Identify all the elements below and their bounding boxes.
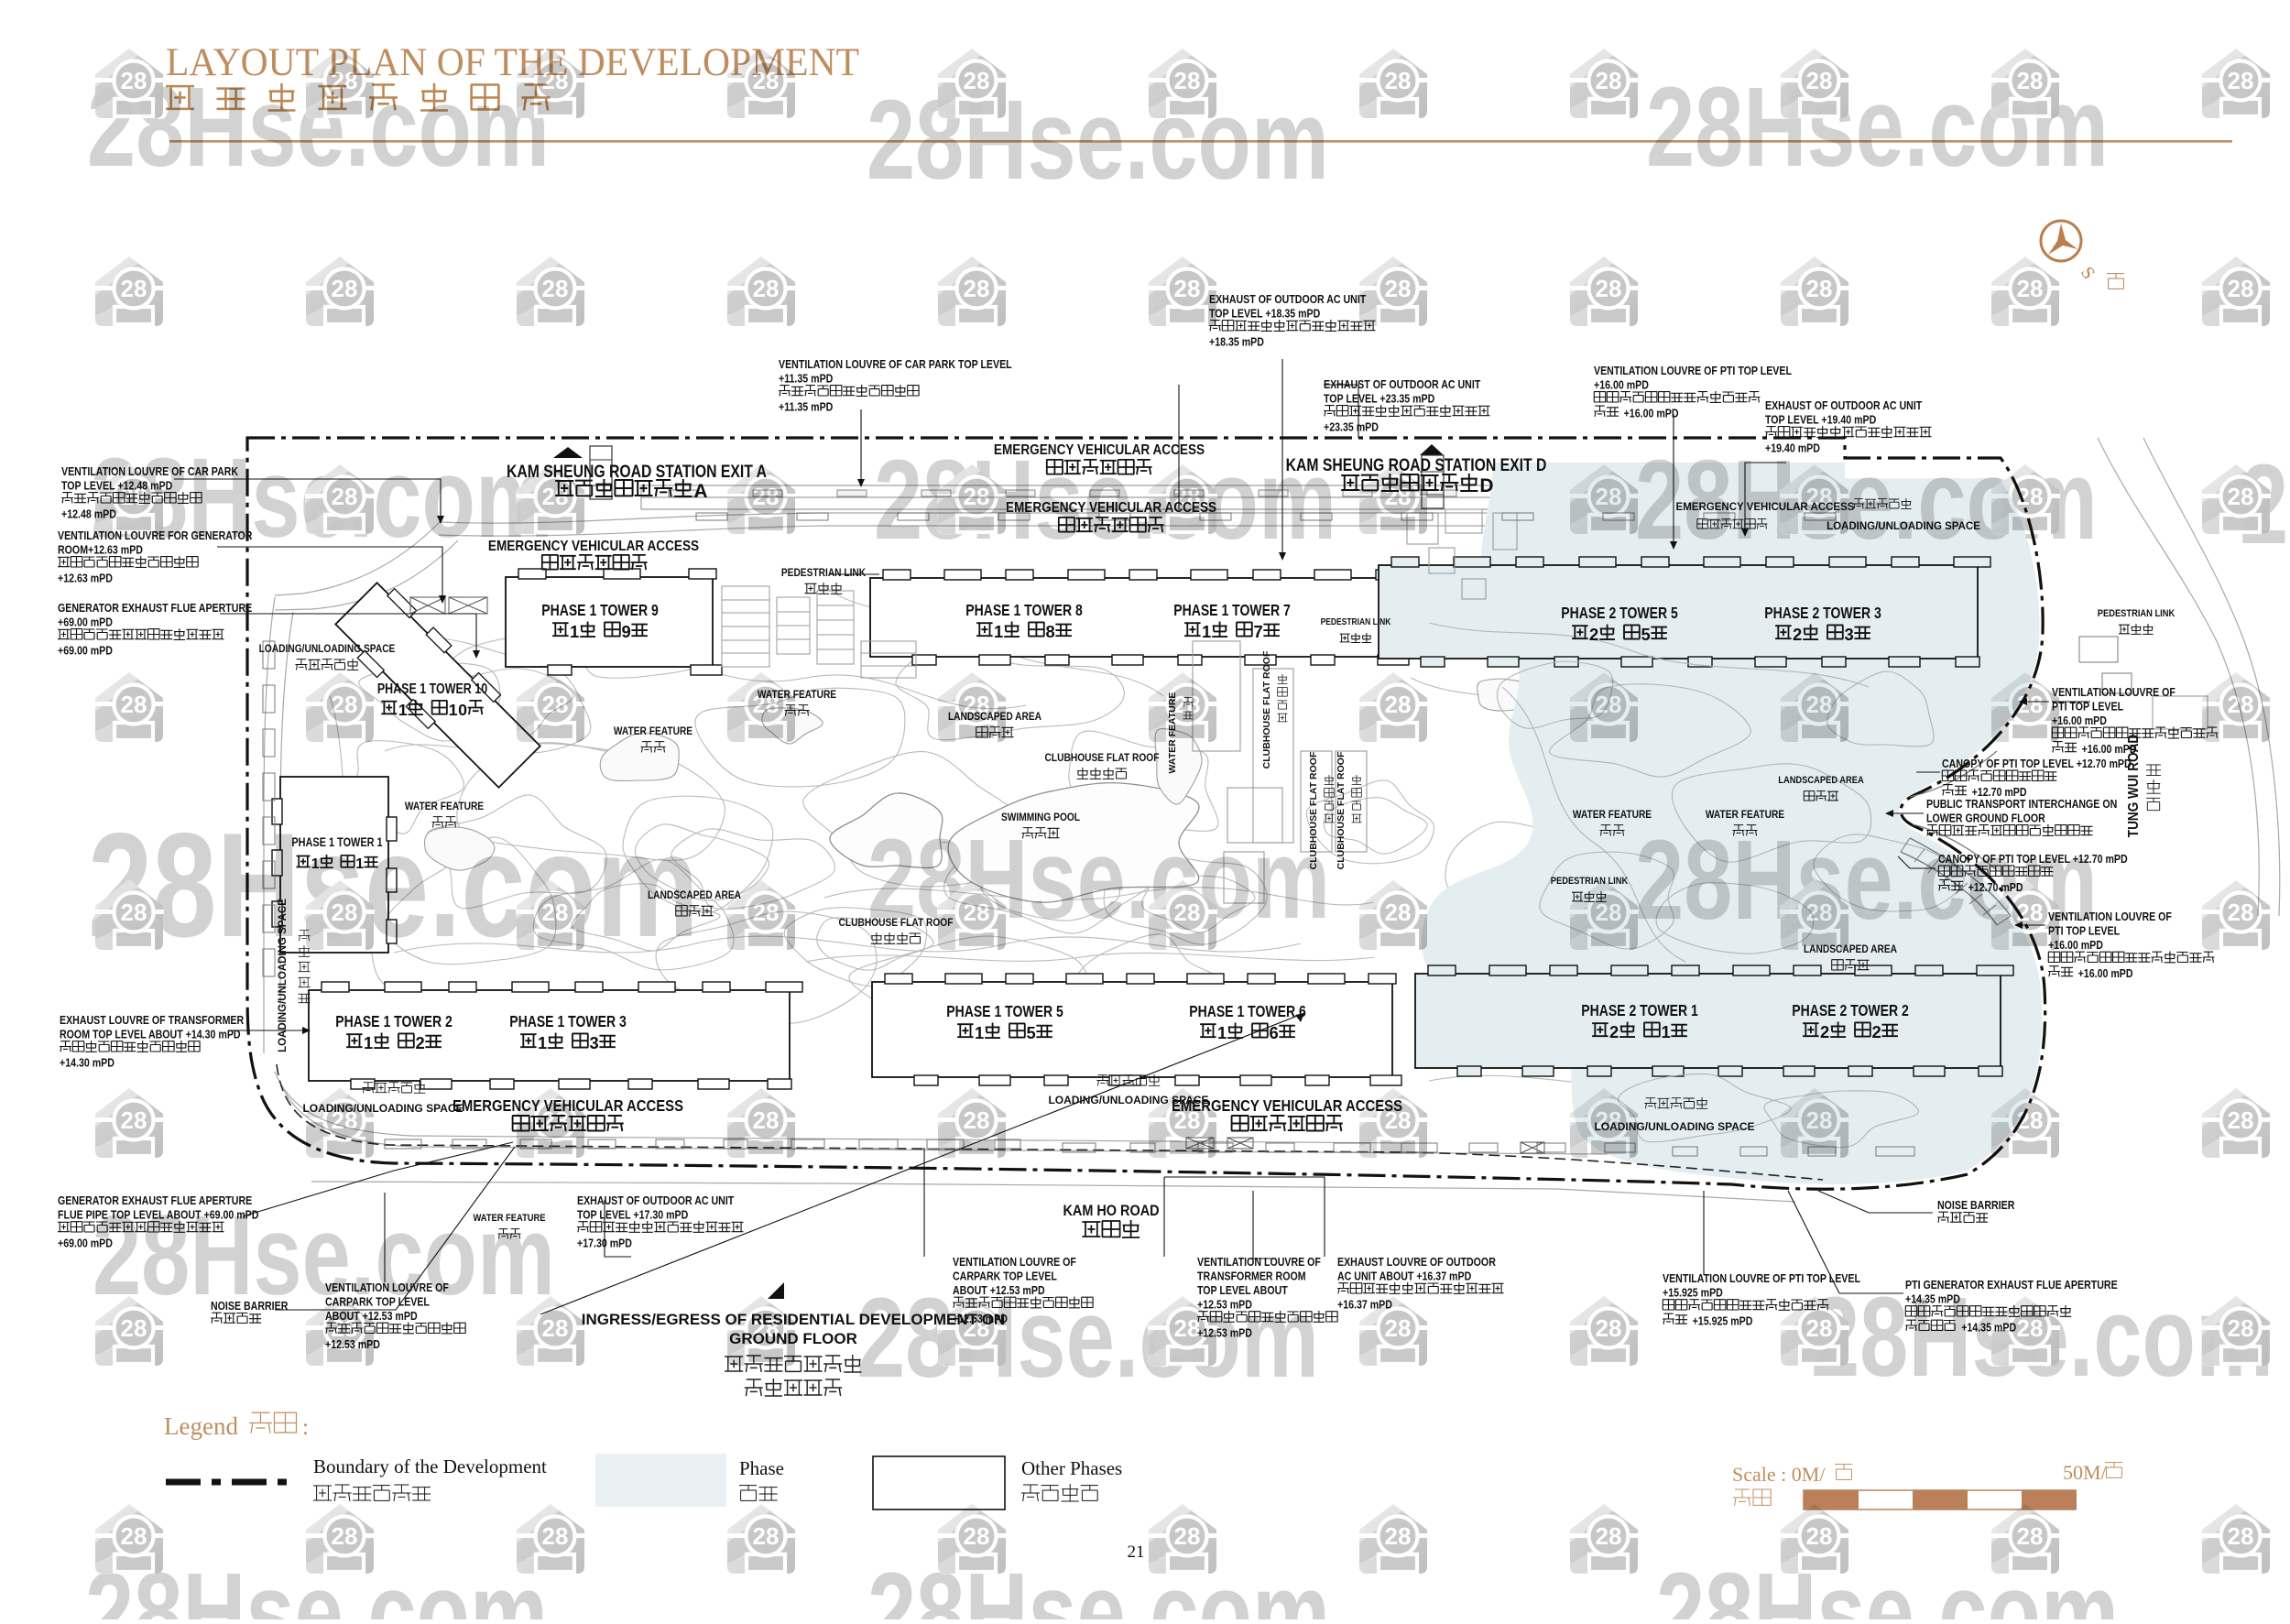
svg-text:28Hse.com: 28Hse.com [93, 1193, 555, 1319]
svg-text:9: 9 [622, 622, 631, 641]
svg-text:TOP LEVEL +19.40 mPD: TOP LEVEL +19.40 mPD [1765, 414, 1876, 427]
svg-text:2: 2 [1609, 1022, 1619, 1041]
svg-text:+12.63 mPD: +12.63 mPD [58, 572, 113, 585]
svg-text:+69.00 mPD: +69.00 mPD [58, 645, 113, 658]
svg-text:+14.30 mPD: +14.30 mPD [60, 1057, 114, 1070]
svg-text:28Hse.com: 28Hse.com [856, 1276, 1319, 1401]
svg-text:VENTILATION LOUVRE OF: VENTILATION LOUVRE OF [2052, 686, 2175, 699]
svg-text:PHASE 2 TOWER 1: PHASE 2 TOWER 1 [1581, 1001, 1698, 1019]
svg-text:GENERATOR EXHAUST FLUE APERTUR: GENERATOR EXHAUST FLUE APERTURE [58, 602, 252, 615]
svg-text:PHASE 1 TOWER 7: PHASE 1 TOWER 7 [1173, 601, 1291, 619]
svg-text:PHASE 2 TOWER 5: PHASE 2 TOWER 5 [1561, 604, 1678, 622]
svg-text:28Hse.com: 28Hse.com [88, 802, 699, 968]
svg-text:1: 1 [449, 701, 458, 719]
svg-text:PHASE 1 TOWER 2: PHASE 1 TOWER 2 [335, 1012, 453, 1030]
svg-text:ROOM TOP LEVEL ABOUT +14.30 m: ROOM TOP LEVEL ABOUT +14.30 mPD [60, 1029, 241, 1041]
svg-text:2: 2 [1872, 1022, 1881, 1041]
svg-text:+12.70 mPD: +12.70 mPD [1972, 786, 2027, 799]
svg-text:3: 3 [1845, 625, 1854, 644]
svg-text:EXHAUST OF OUTDOOR AC UNIT: EXHAUST OF OUTDOOR AC UNIT [577, 1194, 734, 1207]
svg-text:PEDESTRIAN LINK: PEDESTRIAN LINK [781, 567, 866, 579]
svg-text:1: 1 [1217, 1023, 1227, 1042]
svg-text:+17.30 mPD: +17.30 mPD [577, 1237, 632, 1250]
svg-text:+16.00 mPD: +16.00 mPD [2082, 743, 2137, 756]
svg-text:PHASE 1 TOWER 10: PHASE 1 TOWER 10 [377, 681, 487, 698]
svg-text:0: 0 [458, 701, 467, 719]
svg-text:+16.00 mPD: +16.00 mPD [1624, 408, 1679, 420]
svg-text:+16.00 mPD: +16.00 mPD [2052, 714, 2107, 727]
svg-text:KAM HO ROAD: KAM HO ROAD [1063, 1203, 1159, 1219]
svg-text:+18.35 mPD: +18.35 mPD [1209, 336, 1264, 349]
svg-text:PEDESTRIAN LINK: PEDESTRIAN LINK [2098, 608, 2175, 619]
svg-text:PHASE 1 TOWER 9: PHASE 1 TOWER 9 [541, 601, 659, 619]
svg-text:28Hse.com: 28Hse.com [867, 817, 1330, 943]
svg-text:A: A [693, 481, 707, 502]
svg-text:PEDESTRIAN LINK: PEDESTRIAN LINK [1321, 616, 1391, 627]
svg-text:EXHAUST LOUVRE OF TRANSFORMER: EXHAUST LOUVRE OF TRANSFORMER [60, 1014, 245, 1027]
svg-text:PHASE 2 TOWER 2: PHASE 2 TOWER 2 [1792, 1001, 1909, 1019]
svg-text:PHASE 1 TOWER 8: PHASE 1 TOWER 8 [965, 601, 1083, 619]
svg-text::: : [302, 1415, 309, 1440]
svg-text:CANOPY OF PTI TOP LEVEL +12.70: CANOPY OF PTI TOP LEVEL +12.70 mPD [1942, 758, 2132, 770]
svg-text:2: 2 [416, 1033, 425, 1052]
svg-text:3: 3 [590, 1033, 599, 1052]
svg-text:2: 2 [1820, 1022, 1829, 1041]
svg-text:1: 1 [538, 1033, 547, 1052]
svg-text:EXHAUST LOUVRE OF OUTDOOR: EXHAUST LOUVRE OF OUTDOOR [1337, 1256, 1496, 1269]
svg-text:Phase: Phase [739, 1457, 784, 1479]
svg-text:+11.35 mPD: +11.35 mPD [779, 373, 833, 386]
svg-text:+11.35 mPD: +11.35 mPD [779, 401, 833, 414]
svg-text:6: 6 [1270, 1023, 1279, 1042]
svg-text:WATER FEATURE: WATER FEATURE [614, 725, 692, 737]
svg-text:PHASE 1 TOWER 5: PHASE 1 TOWER 5 [946, 1002, 1063, 1020]
svg-text:28Hse.com: 28Hse.com [867, 78, 1329, 203]
svg-text:PHASE 1 TOWER 6: PHASE 1 TOWER 6 [1189, 1002, 1306, 1020]
svg-text:AC UNIT ABOUT +16.37 mPD: AC UNIT ABOUT +16.37 mPD [1337, 1270, 1471, 1283]
svg-text:PTI TOP LEVEL: PTI TOP LEVEL [2052, 701, 2123, 714]
svg-text:+16.00 mPD: +16.00 mPD [1594, 379, 1649, 392]
svg-text:LANDSCAPED AREA: LANDSCAPED AREA [1778, 775, 1864, 786]
svg-text:1: 1 [398, 701, 408, 719]
svg-text:Scale : 0M/: Scale : 0M/ [1732, 1463, 1826, 1486]
svg-text:1: 1 [994, 622, 1003, 641]
svg-text:PHASE 1 TOWER 3: PHASE 1 TOWER 3 [509, 1012, 627, 1030]
svg-text:PUBLIC TRANSPORT INTERCHANGE O: PUBLIC TRANSPORT INTERCHANGE ON [1926, 798, 2117, 811]
svg-text:1: 1 [1202, 622, 1211, 641]
svg-text:8: 8 [1046, 622, 1055, 641]
svg-text:EXHAUST OF OUTDOOR AC UNIT: EXHAUST OF OUTDOOR AC UNIT [1765, 399, 1922, 412]
svg-text:PEDESTRIAN LINK: PEDESTRIAN LINK [1551, 876, 1629, 887]
svg-text:50M/: 50M/ [2063, 1461, 2108, 1484]
svg-text:TOP LEVEL +17.30 mPD: TOP LEVEL +17.30 mPD [577, 1209, 688, 1222]
svg-text:1: 1 [1662, 1022, 1671, 1041]
svg-text:VENTILATION LOUVRE OF PTI TOP: VENTILATION LOUVRE OF PTI TOP LEVEL [1594, 365, 1792, 377]
svg-text:7: 7 [1254, 622, 1263, 641]
svg-text:Legend: Legend [164, 1412, 238, 1440]
svg-text:5: 5 [1027, 1023, 1036, 1042]
svg-text:+69.00 mPD: +69.00 mPD [58, 616, 113, 629]
svg-text:LOADING/UNLOADING SPACE: LOADING/UNLOADING SPACE [259, 643, 396, 655]
svg-text:D: D [1479, 475, 1493, 496]
svg-text:2: 2 [1589, 625, 1598, 644]
svg-text:+23.35 mPD: +23.35 mPD [1324, 421, 1379, 434]
svg-text:+15.925 mPD: +15.925 mPD [1693, 1315, 1753, 1328]
svg-text:1: 1 [975, 1023, 984, 1042]
svg-text:1: 1 [364, 1033, 373, 1052]
svg-text:28Hse.com: 28Hse.com [867, 1551, 1330, 1619]
svg-text:2: 2 [1793, 625, 1802, 644]
svg-text:VENTILATION LOUVRE OF: VENTILATION LOUVRE OF [953, 1256, 1076, 1269]
svg-text:+16.00 mPD: +16.00 mPD [2078, 967, 2133, 980]
svg-text:CLUBHOUSE FLAT ROOF: CLUBHOUSE FLAT ROOF [1045, 752, 1160, 764]
svg-text:EXHAUST OF OUTDOOR AC UNIT: EXHAUST OF OUTDOOR AC UNIT [1324, 378, 1480, 391]
svg-text:5: 5 [1641, 625, 1651, 644]
svg-text:TOP LEVEL +18.35 mPD: TOP LEVEL +18.35 mPD [1209, 308, 1320, 321]
svg-text:EXHAUST OF OUTDOOR AC UNIT: EXHAUST OF OUTDOOR AC UNIT [1209, 293, 1366, 306]
svg-text:Boundary of the Development: Boundary of the Development [313, 1455, 547, 1477]
svg-text:TOP LEVEL +23.35 mPD: TOP LEVEL +23.35 mPD [1324, 393, 1434, 406]
svg-text:NOISE BARRIER: NOISE BARRIER [1937, 1199, 2015, 1212]
svg-text:VENTILATION LOUVRE OF: VENTILATION LOUVRE OF [1197, 1256, 1321, 1269]
svg-text:+15.925 mPD: +15.925 mPD [1663, 1287, 1723, 1300]
svg-text:PHASE 2 TOWER 3: PHASE 2 TOWER 3 [1764, 604, 1881, 622]
svg-text:VENTILATION LOUVRE OF CAR PARK: VENTILATION LOUVRE OF CAR PARK TOP LEVEL [779, 358, 1012, 371]
svg-text:Other Phases: Other Phases [1021, 1457, 1122, 1479]
svg-text:1: 1 [570, 622, 579, 641]
svg-text:CLUBHOUSE FLAT ROOF: CLUBHOUSE FLAT ROOF [1336, 751, 1347, 869]
svg-text:CLUBHOUSE FLAT ROOF: CLUBHOUSE FLAT ROOF [1261, 650, 1272, 768]
